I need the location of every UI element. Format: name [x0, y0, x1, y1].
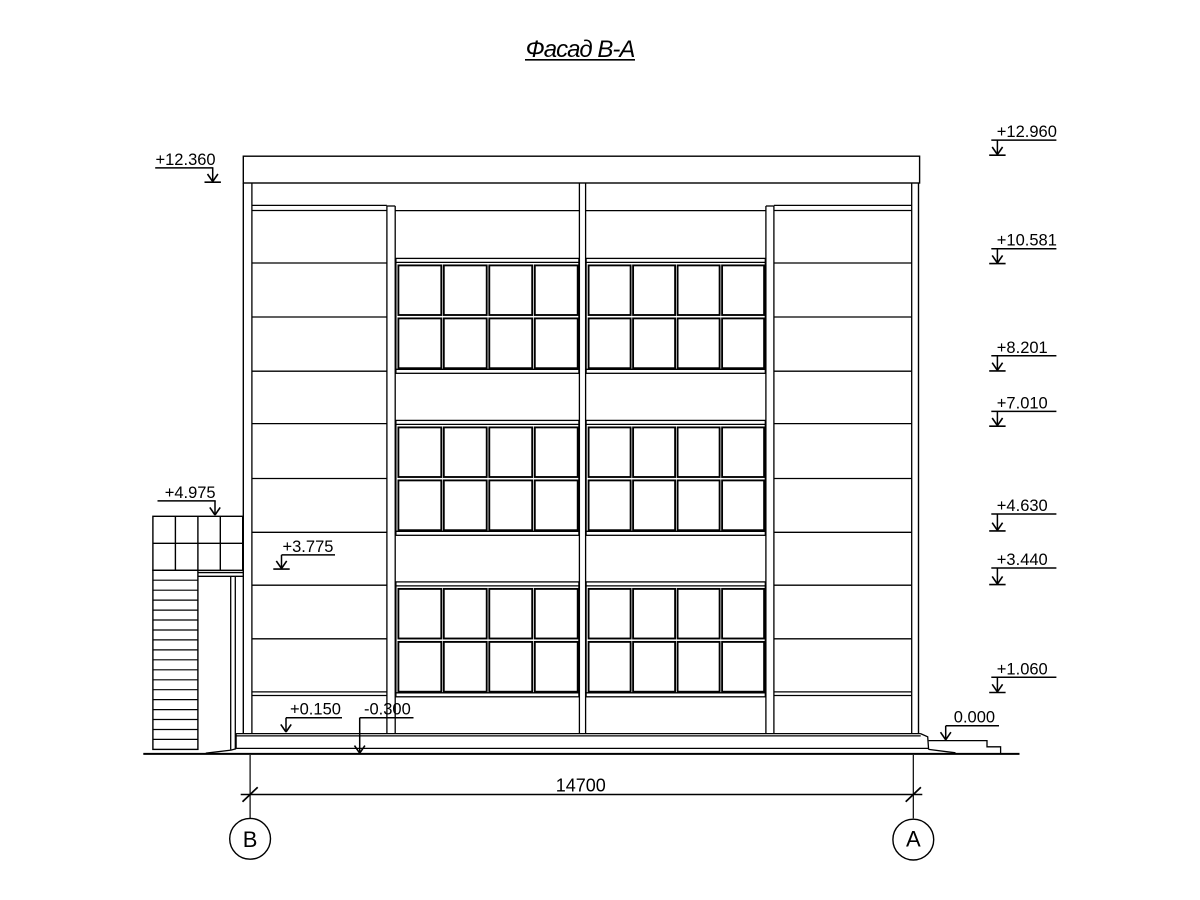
svg-text:+12.360: +12.360: [156, 151, 216, 169]
svg-text:+3.440: +3.440: [997, 551, 1048, 569]
svg-text:+3.775: +3.775: [283, 538, 334, 556]
svg-text:В: В: [243, 827, 258, 852]
svg-text:0.000: 0.000: [954, 709, 995, 727]
svg-text:+8.201: +8.201: [997, 339, 1048, 357]
svg-text:+0.150: +0.150: [290, 701, 341, 719]
svg-text:+1.060: +1.060: [997, 660, 1048, 678]
svg-text:+7.010: +7.010: [997, 394, 1048, 412]
svg-text:+12.960: +12.960: [997, 123, 1057, 141]
svg-text:-0.300: -0.300: [364, 701, 411, 719]
svg-text:+4.630: +4.630: [997, 497, 1048, 515]
svg-text:+10.581: +10.581: [997, 232, 1057, 250]
svg-text:+4.975: +4.975: [165, 484, 216, 502]
svg-text:А: А: [906, 827, 921, 852]
svg-text:14700: 14700: [556, 776, 606, 796]
